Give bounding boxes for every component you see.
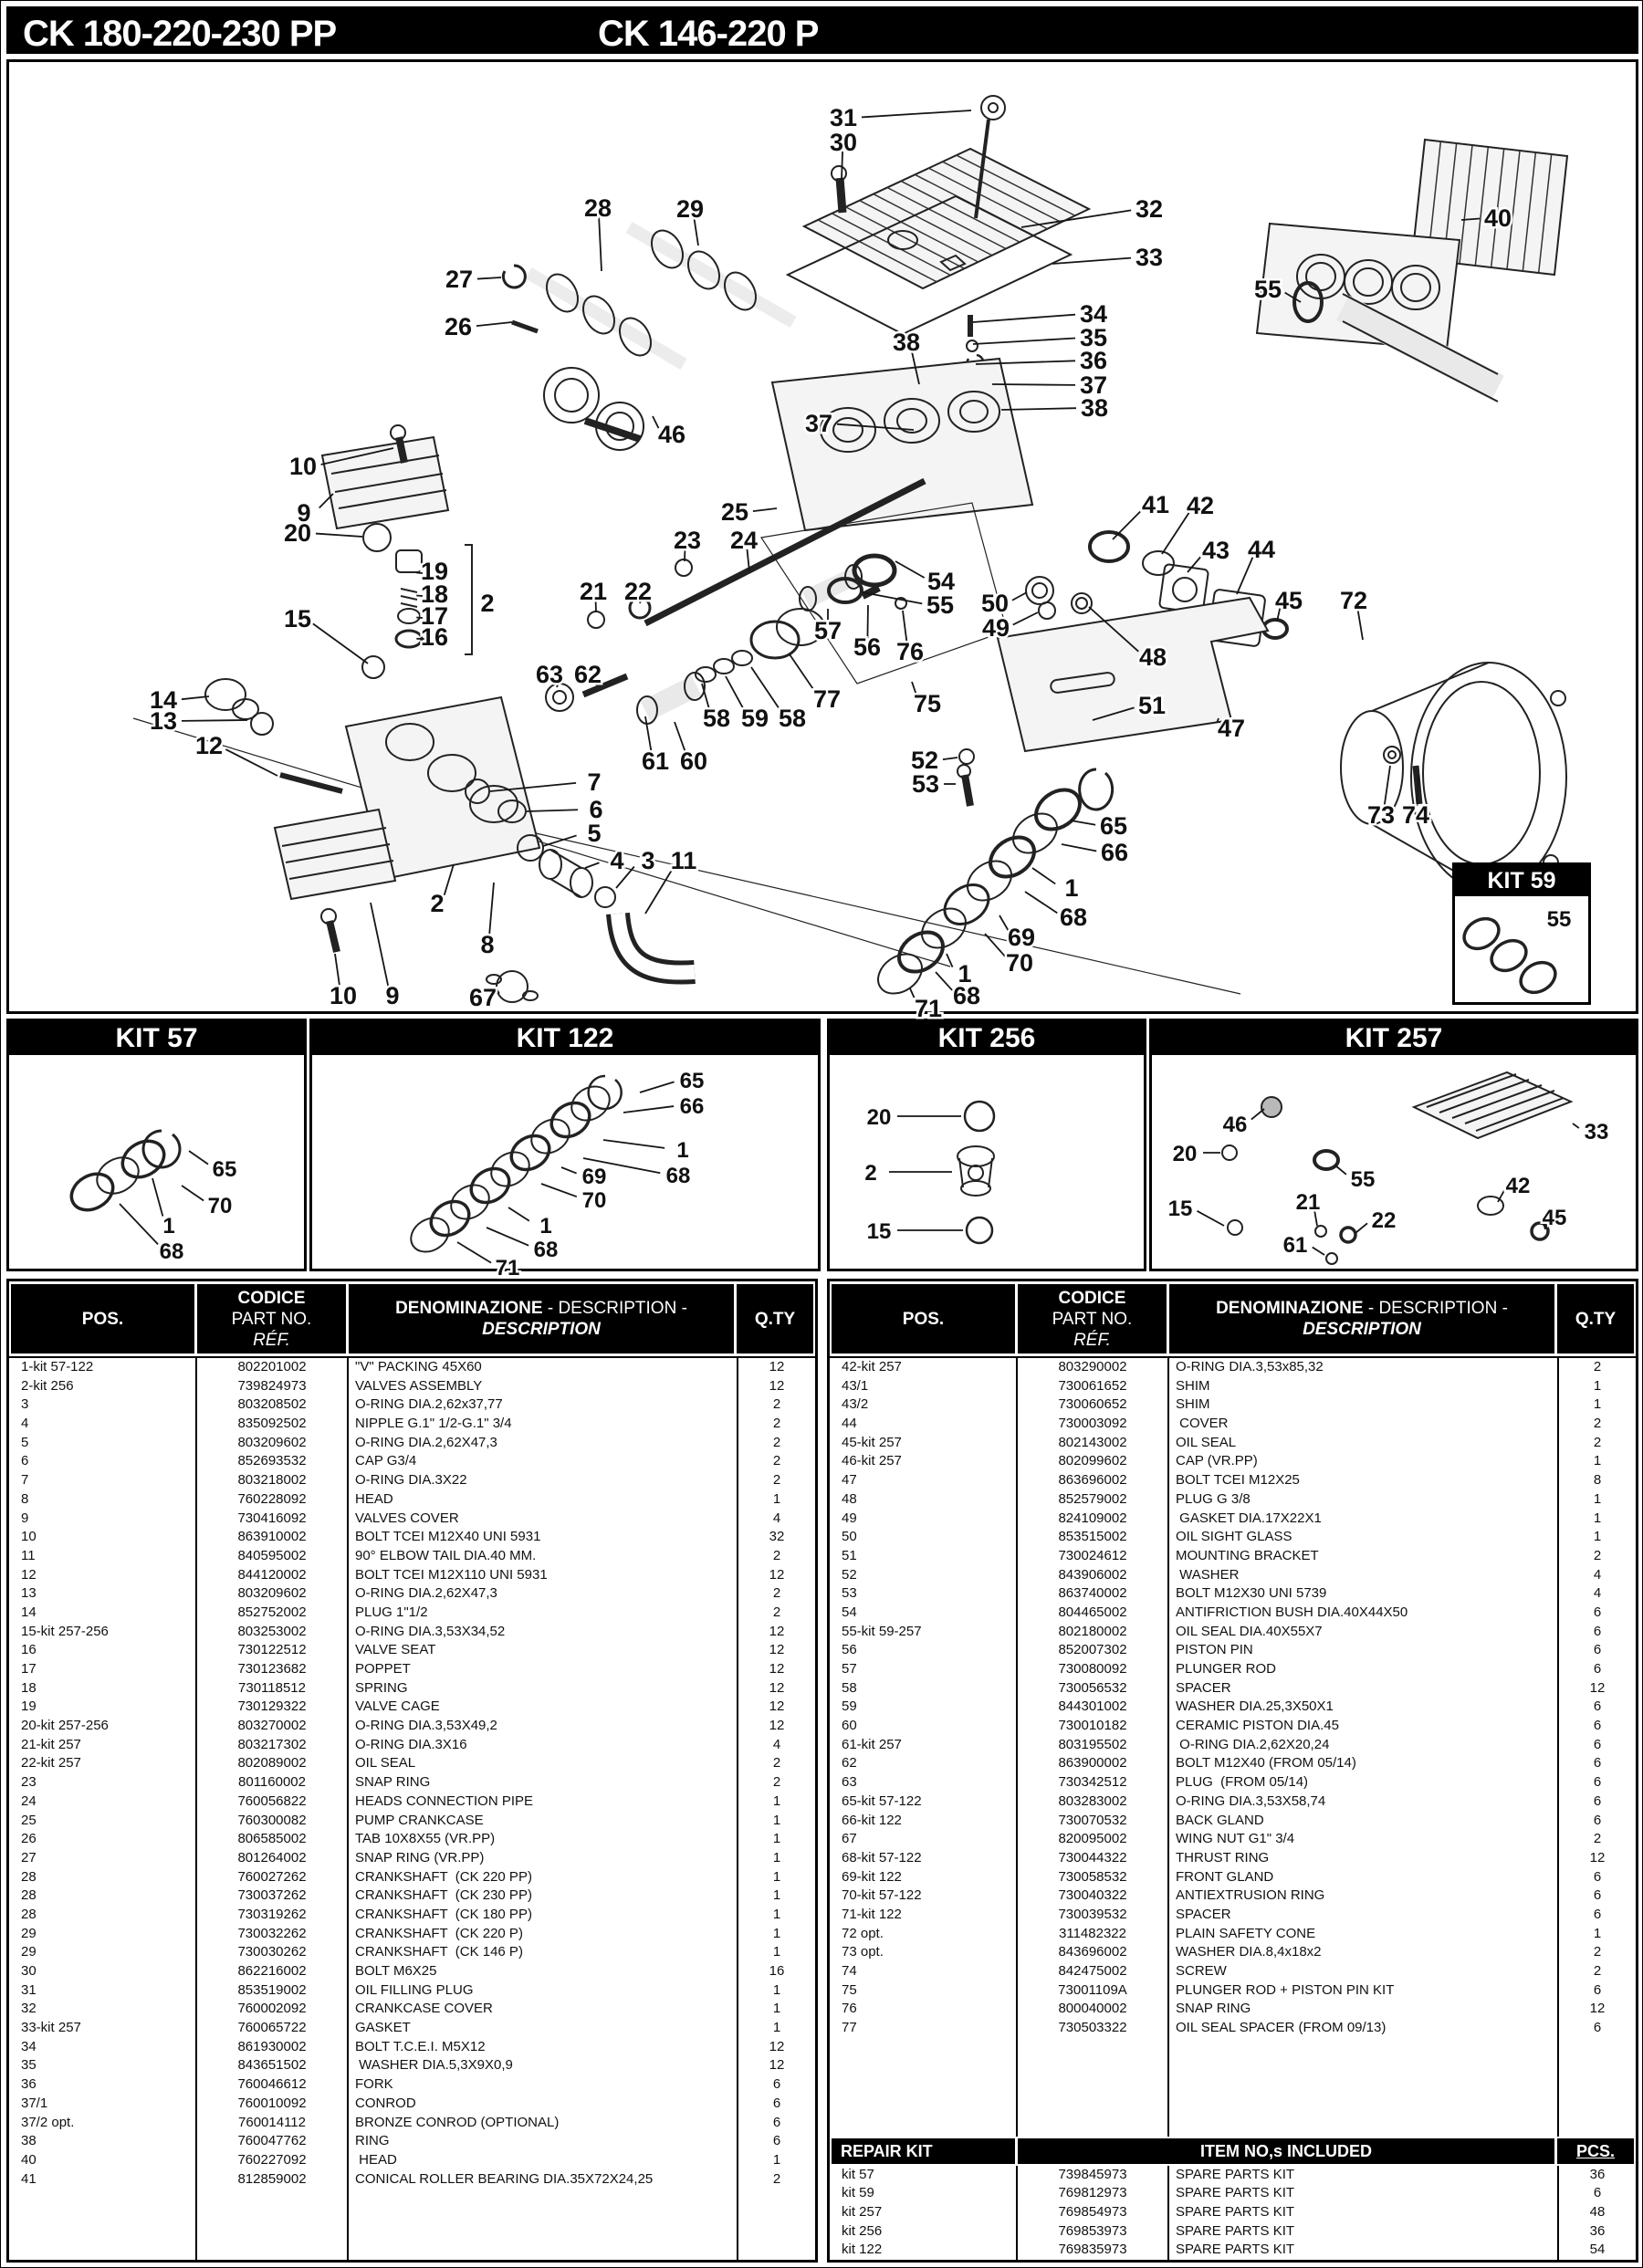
part-desc: CRANKSHAFT (CK 180 PP) bbox=[347, 1906, 737, 1925]
part-qty: 1 bbox=[737, 1906, 815, 1925]
part-desc: BOLT T.C.E.I. M5X12 bbox=[347, 2038, 737, 2057]
part-qty: 2 bbox=[737, 2170, 815, 2190]
part-pos: 70-kit 57-122 bbox=[830, 1887, 1016, 1906]
part-desc: OIL SEAL SPACER (FROM 09/13) bbox=[1167, 2019, 1557, 2038]
part-pos: 15-kit 257-256 bbox=[9, 1623, 195, 1642]
part-qty: 12 bbox=[737, 2038, 815, 2057]
part-qty: 2 bbox=[1557, 1358, 1636, 1377]
part-pos: 40 bbox=[9, 2151, 195, 2170]
part-desc: SHIM bbox=[1167, 1395, 1557, 1415]
part-pos: 66-kit 122 bbox=[830, 1812, 1016, 1831]
repair-kit-header: REPAIR KITITEM NO,s INCLUDEDPCS. bbox=[830, 2138, 1636, 2164]
part-pos: 41 bbox=[9, 2170, 195, 2190]
part-row: 49824109002 GASKET DIA.17X22X11 bbox=[830, 1510, 1636, 1529]
part-desc: BOLT TCEI M12X40 UNI 5931 bbox=[347, 1528, 737, 1547]
part-code: 801160002 bbox=[195, 1773, 347, 1792]
part-code: 760046612 bbox=[195, 2075, 347, 2095]
part-code: 760228092 bbox=[195, 1490, 347, 1510]
part-qty: 48 bbox=[1557, 2203, 1636, 2222]
part-pos: 37/1 bbox=[9, 2095, 195, 2114]
part-qty: 2 bbox=[737, 1754, 815, 1773]
part-row: 56852007302PISTON PIN6 bbox=[830, 1641, 1636, 1660]
part-desc: O-RING DIA.2,62X47,3 bbox=[347, 1434, 737, 1453]
part-row: 45-kit 257802143002OIL SEAL2 bbox=[830, 1434, 1636, 1453]
parts-table-left: POS. CODICE PART NO. RÉF. DENOMINAZIONE … bbox=[6, 1279, 818, 2263]
part-qty: 2 bbox=[1557, 1547, 1636, 1566]
col-pos-header: POS. bbox=[832, 1284, 1015, 1353]
part-pos: 77 bbox=[830, 2019, 1016, 2038]
part-row: 43/1730061652SHIM1 bbox=[830, 1377, 1636, 1396]
part-desc: TAB 10X8X55 (VR.PP) bbox=[347, 1830, 737, 1849]
table-right-body: 42-kit 257803290002O-RING DIA.3,53x85,32… bbox=[830, 1358, 1636, 2260]
part-pos: 55-kit 59-257 bbox=[830, 1623, 1016, 1642]
part-desc: CRANKSHAFT (CK 220 PP) bbox=[347, 1868, 737, 1887]
part-desc: OIL SIGHT GLASS bbox=[1167, 1528, 1557, 1547]
part-desc: BOLT M12X40 (FROM 05/14) bbox=[1167, 1754, 1557, 1773]
part-row: 50853515002OIL SIGHT GLASS1 bbox=[830, 1528, 1636, 1547]
part-desc: PLUG 1"1/2 bbox=[347, 1604, 737, 1623]
part-desc: RING bbox=[347, 2132, 737, 2151]
part-desc: PLAIN SAFETY CONE bbox=[1167, 1925, 1557, 1944]
part-pos: 30 bbox=[9, 1962, 195, 1981]
part-code: 863740002 bbox=[1016, 1584, 1167, 1604]
part-qty: 1 bbox=[737, 2019, 815, 2038]
kit-122-box: KIT 122 bbox=[309, 1019, 821, 1271]
part-desc: OIL FILLING PLUG bbox=[347, 1981, 737, 2001]
part-pos: 5 bbox=[9, 1434, 195, 1453]
part-desc: THRUST RING bbox=[1167, 1849, 1557, 1868]
part-row: 2-kit 256739824973VALVES ASSEMBLY12 bbox=[9, 1377, 815, 1396]
part-row: 48852579002PLUG G 3/81 bbox=[830, 1490, 1636, 1510]
part-code: 852693532 bbox=[195, 1452, 347, 1471]
part-row: kit 256769853973SPARE PARTS KIT36 bbox=[830, 2222, 1636, 2242]
part-code: 803195502 bbox=[1016, 1736, 1167, 1755]
part-code: 842475002 bbox=[1016, 1962, 1167, 1981]
col-code-header: CODICE PART NO. RÉF. bbox=[197, 1284, 346, 1353]
part-qty: 6 bbox=[1557, 1717, 1636, 1736]
part-pos: kit 59 bbox=[830, 2184, 1016, 2203]
kit-57-box: KIT 57 bbox=[6, 1019, 307, 1271]
part-code: 861930002 bbox=[195, 2038, 347, 2057]
part-desc: BACK GLAND bbox=[1167, 1812, 1557, 1831]
part-qty: 6 bbox=[1557, 1887, 1636, 1906]
part-row: kit 57739845973SPARE PARTS KIT36 bbox=[830, 2166, 1636, 2185]
part-pos: 1-kit 57-122 bbox=[9, 1358, 195, 1377]
part-row: 17730123682POPPET12 bbox=[9, 1660, 815, 1679]
part-pos: 6 bbox=[9, 1452, 195, 1471]
part-pos: 32 bbox=[9, 2000, 195, 2019]
part-code: 730032262 bbox=[195, 1925, 347, 1944]
part-code: 760014112 bbox=[195, 2114, 347, 2133]
part-row: 24760056822HEADS CONNECTION PIPE1 bbox=[9, 1792, 815, 1812]
part-qty: 1 bbox=[1557, 1528, 1636, 1547]
part-row: 68-kit 57-122730044322THRUST RING12 bbox=[830, 1849, 1636, 1868]
part-pos: 69-kit 122 bbox=[830, 1868, 1016, 1887]
part-code: 769853973 bbox=[1016, 2222, 1167, 2242]
part-pos: 7 bbox=[9, 1471, 195, 1490]
part-row: 70-kit 57-122730040322ANTIEXTRUSION RING… bbox=[830, 1887, 1636, 1906]
part-desc: O-RING DIA.3,53X49,2 bbox=[347, 1717, 737, 1736]
part-desc: PLUG (FROM 05/14) bbox=[1167, 1773, 1557, 1792]
col-pos-header: POS. bbox=[11, 1284, 194, 1353]
part-row: 37/1760010092CONROD6 bbox=[9, 2095, 815, 2114]
part-qty: 12 bbox=[737, 1566, 815, 1585]
part-pos: 49 bbox=[830, 1510, 1016, 1529]
page-title-left: CK 180-220-230 PP bbox=[23, 14, 336, 55]
part-qty: 6 bbox=[1557, 1623, 1636, 1642]
part-desc: COVER bbox=[1167, 1415, 1557, 1434]
part-desc: CAP (VR.PP) bbox=[1167, 1452, 1557, 1471]
table-left-header: POS. CODICE PART NO. RÉF. DENOMINAZIONE … bbox=[9, 1281, 815, 1358]
part-code: 843696002 bbox=[1016, 1943, 1167, 1962]
part-desc: O-RING DIA.3,53x85,32 bbox=[1167, 1358, 1557, 1377]
part-qty: 1 bbox=[737, 1868, 815, 1887]
part-code: 844120002 bbox=[195, 1566, 347, 1585]
part-qty: 6 bbox=[1557, 1604, 1636, 1623]
part-pos: 76 bbox=[830, 2000, 1016, 2019]
part-code: 73001109A bbox=[1016, 1981, 1167, 2001]
part-pos: 31 bbox=[9, 1981, 195, 2001]
part-qty: 2 bbox=[737, 1604, 815, 1623]
col-code-header: CODICE PART NO. RÉF. bbox=[1018, 1284, 1167, 1353]
part-code: 802180002 bbox=[1016, 1623, 1167, 1642]
part-desc: PLUNGER ROD bbox=[1167, 1660, 1557, 1679]
part-code: 803283002 bbox=[1016, 1792, 1167, 1812]
part-qty: 1 bbox=[737, 1849, 815, 1868]
part-pos: 3 bbox=[9, 1395, 195, 1415]
part-row: 74842475002SCREW2 bbox=[830, 1962, 1636, 1981]
part-row: 36760046612FORK6 bbox=[9, 2075, 815, 2095]
part-desc: SNAP RING bbox=[1167, 2000, 1557, 2019]
part-row: 32760002092CRANKCASE COVER1 bbox=[9, 2000, 815, 2019]
col-qty-header: Q.TY bbox=[1557, 1284, 1634, 1353]
part-row: 27801264002SNAP RING (VR.PP)1 bbox=[9, 1849, 815, 1868]
part-qty: 1 bbox=[1557, 1490, 1636, 1510]
part-pos: 56 bbox=[830, 1641, 1016, 1660]
part-code: 730056532 bbox=[1016, 1679, 1167, 1698]
part-qty: 2 bbox=[737, 1434, 815, 1453]
part-qty: 12 bbox=[737, 2056, 815, 2075]
part-desc: O-RING DIA.2,62X20,24 bbox=[1167, 1736, 1557, 1755]
part-desc: ANTIFRICTION BUSH DIA.40X44X50 bbox=[1167, 1604, 1557, 1623]
part-code: 862216002 bbox=[195, 1962, 347, 1981]
part-row: 6852693532CAP G3/42 bbox=[9, 1452, 815, 1471]
part-desc: MOUNTING BRACKET bbox=[1167, 1547, 1557, 1566]
part-pos: 73 opt. bbox=[830, 1943, 1016, 1962]
part-row: 58730056532SPACER12 bbox=[830, 1679, 1636, 1698]
part-code: 835092502 bbox=[195, 1415, 347, 1434]
part-row: 54804465002ANTIFRICTION BUSH DIA.40X44X5… bbox=[830, 1604, 1636, 1623]
part-qty: 1 bbox=[1557, 1452, 1636, 1471]
part-qty: 12 bbox=[737, 1679, 815, 1698]
part-pos: 68-kit 57-122 bbox=[830, 1849, 1016, 1868]
col-description-header: DENOMINAZIONE - DESCRIPTION - DESCRIPTIO… bbox=[1169, 1284, 1554, 1353]
part-desc: OIL SEAL bbox=[1167, 1434, 1557, 1453]
part-pos: 75 bbox=[830, 1981, 1016, 2001]
part-pos: 17 bbox=[9, 1660, 195, 1679]
part-desc: WASHER DIA.25,3X50X1 bbox=[1167, 1698, 1557, 1717]
part-desc: SCREW bbox=[1167, 1962, 1557, 1981]
part-pos: 52 bbox=[830, 1566, 1016, 1585]
part-code: 739845973 bbox=[1016, 2166, 1167, 2185]
part-pos: 54 bbox=[830, 1604, 1016, 1623]
part-pos: 57 bbox=[830, 1660, 1016, 1679]
kit-57-title: KIT 57 bbox=[9, 1021, 304, 1055]
kit-256-title: KIT 256 bbox=[830, 1021, 1144, 1055]
part-desc: SPARE PARTS KIT bbox=[1167, 2241, 1557, 2260]
part-row: 71-kit 122730039532SPACER6 bbox=[830, 1906, 1636, 1925]
part-code: 844301002 bbox=[1016, 1698, 1167, 1717]
part-pos: 20-kit 257-256 bbox=[9, 1717, 195, 1736]
part-desc: CRANKSHAFT (CK 230 PP) bbox=[347, 1887, 737, 1906]
part-desc: VALVES ASSEMBLY bbox=[347, 1377, 737, 1396]
part-code: 806585002 bbox=[195, 1830, 347, 1849]
part-desc: CRANKSHAFT (CK 220 P) bbox=[347, 1925, 737, 1944]
part-desc: SPARE PARTS KIT bbox=[1167, 2203, 1557, 2222]
part-row: 31853519002OIL FILLING PLUG1 bbox=[9, 1981, 815, 2001]
part-pos: 46-kit 257 bbox=[830, 1452, 1016, 1471]
part-code: 803209602 bbox=[195, 1584, 347, 1604]
part-desc: 90° ELBOW TAIL DIA.40 MM. bbox=[347, 1547, 737, 1566]
part-qty: 2 bbox=[737, 1415, 815, 1434]
part-row: 40760227092 HEAD1 bbox=[9, 2151, 815, 2170]
part-row: 60730010182CERAMIC PISTON DIA.456 bbox=[830, 1717, 1636, 1736]
part-row: 47863696002BOLT TCEI M12X258 bbox=[830, 1471, 1636, 1490]
part-qty: 6 bbox=[1557, 1868, 1636, 1887]
col-description-header: DENOMINAZIONE - DESCRIPTION - DESCRIPTIO… bbox=[349, 1284, 734, 1353]
part-code: 730080092 bbox=[1016, 1660, 1167, 1679]
part-pos: 36 bbox=[9, 2075, 195, 2095]
part-pos: 29 bbox=[9, 1925, 195, 1944]
part-qty: 1 bbox=[737, 1981, 815, 2001]
part-pos: 28 bbox=[9, 1887, 195, 1906]
part-pos: 51 bbox=[830, 1547, 1016, 1566]
part-desc: HEAD bbox=[347, 2151, 737, 2170]
part-row: 63730342512PLUG (FROM 05/14)6 bbox=[830, 1773, 1636, 1792]
part-pos: 43/2 bbox=[830, 1395, 1016, 1415]
part-code: 730416092 bbox=[195, 1510, 347, 1529]
kit-122-title: KIT 122 bbox=[312, 1021, 818, 1055]
part-code: 802201002 bbox=[195, 1358, 347, 1377]
part-code: 730070532 bbox=[1016, 1812, 1167, 1831]
part-row: 76800040002SNAP RING12 bbox=[830, 2000, 1636, 2019]
part-code: 803253002 bbox=[195, 1623, 347, 1642]
repair-kit-included-label: ITEM NO,s INCLUDED bbox=[1018, 2138, 1554, 2164]
part-qty: 1 bbox=[1557, 1510, 1636, 1529]
part-desc: CERAMIC PISTON DIA.45 bbox=[1167, 1717, 1557, 1736]
part-qty: 2 bbox=[737, 1584, 815, 1604]
part-desc: OIL SEAL bbox=[347, 1754, 737, 1773]
part-code: 730040322 bbox=[1016, 1887, 1167, 1906]
part-row: 55-kit 59-257802180002OIL SEAL DIA.40X55… bbox=[830, 1623, 1636, 1642]
part-desc: FORK bbox=[347, 2075, 737, 2095]
part-desc: CONROD bbox=[347, 2095, 737, 2114]
part-code: 801264002 bbox=[195, 1849, 347, 1868]
part-pos: 14 bbox=[9, 1604, 195, 1623]
part-desc: BOLT TCEI M12X110 UNI 5931 bbox=[347, 1566, 737, 1585]
part-row: 29730032262CRANKSHAFT (CK 220 P)1 bbox=[9, 1925, 815, 1944]
part-pos: 23 bbox=[9, 1773, 195, 1792]
part-qty: 54 bbox=[1557, 2241, 1636, 2260]
part-qty: 4 bbox=[737, 1736, 815, 1755]
part-code: 853515002 bbox=[1016, 1528, 1167, 1547]
kit-59-title: KIT 59 bbox=[1455, 865, 1588, 896]
part-code: 730129322 bbox=[195, 1698, 347, 1717]
part-qty: 6 bbox=[737, 2114, 815, 2133]
part-row: 1184059500290° ELBOW TAIL DIA.40 MM.2 bbox=[9, 1547, 815, 1566]
part-qty: 6 bbox=[737, 2132, 815, 2151]
part-row: 1-kit 57-122802201002"V" PACKING 45X6012 bbox=[9, 1358, 815, 1377]
part-pos: 35 bbox=[9, 2056, 195, 2075]
part-desc: POPPET bbox=[347, 1660, 737, 1679]
part-pos: 4 bbox=[9, 1415, 195, 1434]
part-desc: PISTON PIN bbox=[1167, 1641, 1557, 1660]
part-qty: 8 bbox=[1557, 1471, 1636, 1490]
part-qty: 6 bbox=[737, 2095, 815, 2114]
part-qty: 2 bbox=[737, 1471, 815, 1490]
part-desc: WASHER DIA.5,3X9X0,9 bbox=[347, 2056, 737, 2075]
part-desc: WING NUT G1" 3/4 bbox=[1167, 1830, 1557, 1849]
part-row: kit 59769812973SPARE PARTS KIT6 bbox=[830, 2184, 1636, 2203]
part-code: 730024612 bbox=[1016, 1547, 1167, 1566]
part-code: 803290002 bbox=[1016, 1358, 1167, 1377]
part-row: 4835092502NIPPLE G.1" 1/2-G.1" 3/42 bbox=[9, 1415, 815, 1434]
part-qty: 12 bbox=[737, 1358, 815, 1377]
part-code: 800040002 bbox=[1016, 2000, 1167, 2019]
part-pos: 25 bbox=[9, 1812, 195, 1831]
part-desc: GASKET DIA.17X22X1 bbox=[1167, 1510, 1557, 1529]
part-qty: 1 bbox=[737, 1943, 815, 1962]
part-pos: 34 bbox=[9, 2038, 195, 2057]
part-pos: 50 bbox=[830, 1528, 1016, 1547]
part-qty: 6 bbox=[1557, 1660, 1636, 1679]
part-pos: 33-kit 257 bbox=[9, 2019, 195, 2038]
part-code: 853519002 bbox=[195, 1981, 347, 2001]
part-pos: 24 bbox=[9, 1792, 195, 1812]
part-pos: 47 bbox=[830, 1471, 1016, 1490]
part-code: 863900002 bbox=[1016, 1754, 1167, 1773]
page-title-right: CK 146-220 P bbox=[598, 14, 818, 55]
part-row: 28760027262CRANKSHAFT (CK 220 PP)1 bbox=[9, 1868, 815, 1887]
part-qty: 12 bbox=[1557, 1679, 1636, 1698]
part-desc: SNAP RING (VR.PP) bbox=[347, 1849, 737, 1868]
part-qty: 6 bbox=[1557, 1641, 1636, 1660]
part-row: 23801160002SNAP RING2 bbox=[9, 1773, 815, 1792]
part-pos: 21-kit 257 bbox=[9, 1736, 195, 1755]
part-pos: 58 bbox=[830, 1679, 1016, 1698]
part-row: 52843906002 WASHER4 bbox=[830, 1566, 1636, 1585]
part-qty: 6 bbox=[1557, 1698, 1636, 1717]
part-qty: 12 bbox=[737, 1641, 815, 1660]
part-qty: 4 bbox=[1557, 1566, 1636, 1585]
part-pos: 43/1 bbox=[830, 1377, 1016, 1396]
part-code: 803218002 bbox=[195, 1471, 347, 1490]
part-pos: 53 bbox=[830, 1584, 1016, 1604]
part-pos: 71-kit 122 bbox=[830, 1906, 1016, 1925]
part-row: 14852752002PLUG 1"1/22 bbox=[9, 1604, 815, 1623]
table-filler bbox=[830, 2038, 1636, 2137]
part-desc: O-RING DIA.2,62x37,77 bbox=[347, 1395, 737, 1415]
kit-257-box: KIT 257 bbox=[1149, 1019, 1638, 1271]
part-pos: 67 bbox=[830, 1830, 1016, 1849]
part-qty: 4 bbox=[737, 1510, 815, 1529]
part-qty: 36 bbox=[1557, 2166, 1636, 2185]
catalog-page: CK 180-220-230 PP CK 146-220 P bbox=[0, 0, 1643, 2268]
part-pos: 65-kit 57-122 bbox=[830, 1792, 1016, 1812]
part-code: 803217302 bbox=[195, 1736, 347, 1755]
kit-59-box: KIT 59 bbox=[1452, 862, 1591, 1005]
part-row: 44730003092 COVER2 bbox=[830, 1415, 1636, 1434]
part-row: 28730319262CRANKSHAFT (CK 180 PP)1 bbox=[9, 1906, 815, 1925]
part-code: 730319262 bbox=[195, 1906, 347, 1925]
part-desc: "V" PACKING 45X60 bbox=[347, 1358, 737, 1377]
part-row: 65-kit 57-122803283002O-RING DIA.3,53X58… bbox=[830, 1792, 1636, 1812]
part-qty: 12 bbox=[737, 1717, 815, 1736]
part-code: 852007302 bbox=[1016, 1641, 1167, 1660]
part-qty: 6 bbox=[1557, 1812, 1636, 1831]
part-row: 51730024612MOUNTING BRACKET2 bbox=[830, 1547, 1636, 1566]
part-row: 30862216002BOLT M6X2516 bbox=[9, 1962, 815, 1981]
part-code: 760010092 bbox=[195, 2095, 347, 2114]
part-code: 730061652 bbox=[1016, 1377, 1167, 1396]
part-code: 730058532 bbox=[1016, 1868, 1167, 1887]
part-qty: 1 bbox=[1557, 1395, 1636, 1415]
part-qty: 6 bbox=[1557, 1981, 1636, 2001]
part-row: 59844301002WASHER DIA.25,3X50X16 bbox=[830, 1698, 1636, 1717]
part-code: 812859002 bbox=[195, 2170, 347, 2190]
repair-kit-title: REPAIR KIT bbox=[832, 2138, 1015, 2164]
part-row: 3803208502O-RING DIA.2,62x37,772 bbox=[9, 1395, 815, 1415]
part-row: 29730030262CRANKSHAFT (CK 146 P)1 bbox=[9, 1943, 815, 1962]
part-qty: 6 bbox=[737, 2075, 815, 2095]
part-pos: 11 bbox=[9, 1547, 195, 1566]
part-row: 22-kit 257802089002OIL SEAL2 bbox=[9, 1754, 815, 1773]
part-code: 820095002 bbox=[1016, 1830, 1167, 1849]
part-pos: 42-kit 257 bbox=[830, 1358, 1016, 1377]
part-qty: 32 bbox=[737, 1528, 815, 1547]
part-pos: 8 bbox=[9, 1490, 195, 1510]
part-row: 19730129322VALVE CAGE12 bbox=[9, 1698, 815, 1717]
part-row: 46-kit 257802099602CAP (VR.PP)1 bbox=[830, 1452, 1636, 1471]
part-desc: SPARE PARTS KIT bbox=[1167, 2222, 1557, 2242]
part-row: 72 opt.311482322PLAIN SAFETY CONE1 bbox=[830, 1925, 1636, 1944]
part-qty: 2 bbox=[737, 1452, 815, 1471]
part-pos: 62 bbox=[830, 1754, 1016, 1773]
part-desc: VALVES COVER bbox=[347, 1510, 737, 1529]
part-desc: OIL SEAL DIA.40X55X7 bbox=[1167, 1623, 1557, 1642]
repair-kit-pcs-label: PCS. bbox=[1557, 2138, 1634, 2164]
part-pos: 72 opt. bbox=[830, 1925, 1016, 1944]
part-qty: 6 bbox=[1557, 1773, 1636, 1792]
part-code: 760056822 bbox=[195, 1792, 347, 1812]
part-row: 7573001109APLUNGER ROD + PISTON PIN KIT6 bbox=[830, 1981, 1636, 2001]
part-pos: 60 bbox=[830, 1717, 1016, 1736]
part-qty: 1 bbox=[737, 1830, 815, 1849]
part-qty: 16 bbox=[737, 1962, 815, 1981]
part-desc: FRONT GLAND bbox=[1167, 1868, 1557, 1887]
part-qty: 36 bbox=[1557, 2222, 1636, 2242]
part-pos: 22-kit 257 bbox=[9, 1754, 195, 1773]
table-left-body: 1-kit 57-122802201002"V" PACKING 45X6012… bbox=[9, 1358, 815, 2260]
part-row: 73 opt.843696002WASHER DIA.8,4x18x22 bbox=[830, 1943, 1636, 1962]
kit-256-box: KIT 256 bbox=[827, 1019, 1146, 1271]
part-code: 730039532 bbox=[1016, 1906, 1167, 1925]
part-qty: 1 bbox=[1557, 1925, 1636, 1944]
part-desc: NIPPLE G.1" 1/2-G.1" 3/4 bbox=[347, 1415, 737, 1434]
part-pos: 44 bbox=[830, 1415, 1016, 1434]
part-code: 760002092 bbox=[195, 2000, 347, 2019]
part-code: 730044322 bbox=[1016, 1849, 1167, 1868]
